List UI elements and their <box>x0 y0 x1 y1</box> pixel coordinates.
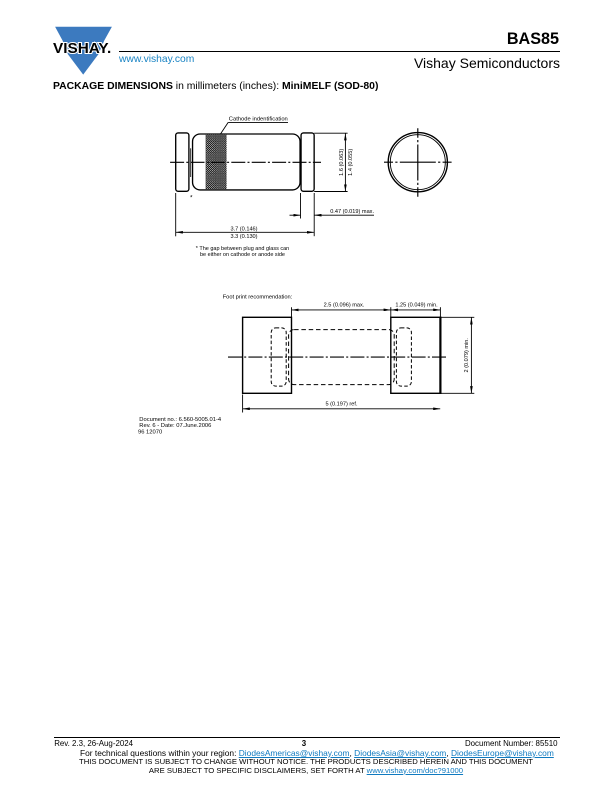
svg-text:0.47 (0.019) max.: 0.47 (0.019) max. <box>330 209 374 215</box>
svg-text:2 (0.079) min.: 2 (0.079) min. <box>464 338 470 373</box>
svg-text:2.5 (0.096) max.: 2.5 (0.096) max. <box>324 302 365 308</box>
svg-text:96 12070: 96 12070 <box>138 429 162 435</box>
svg-text:1.4 (0.055): 1.4 (0.055) <box>348 149 354 176</box>
svg-text:1.25 (0.049) min.: 1.25 (0.049) min. <box>395 302 438 308</box>
svg-text:be either on cathode or anode: be either on cathode or anode side <box>200 252 285 258</box>
svg-text:5 (0.197) ref.: 5 (0.197) ref. <box>325 402 357 408</box>
svg-text:Cathode indentification: Cathode indentification <box>229 117 288 123</box>
svg-text:*: * <box>190 195 193 202</box>
svg-text:Rev. 6 - Date: 07.June.2006: Rev. 6 - Date: 07.June.2006 <box>139 423 211 429</box>
svg-text:3.7 (0.146): 3.7 (0.146) <box>230 227 257 233</box>
svg-text:Foot print recommendation:: Foot print recommendation: <box>223 294 293 300</box>
svg-text:3.3 (0.130): 3.3 (0.130) <box>230 234 257 240</box>
svg-text:1.6 (0.063): 1.6 (0.063) <box>339 149 345 176</box>
